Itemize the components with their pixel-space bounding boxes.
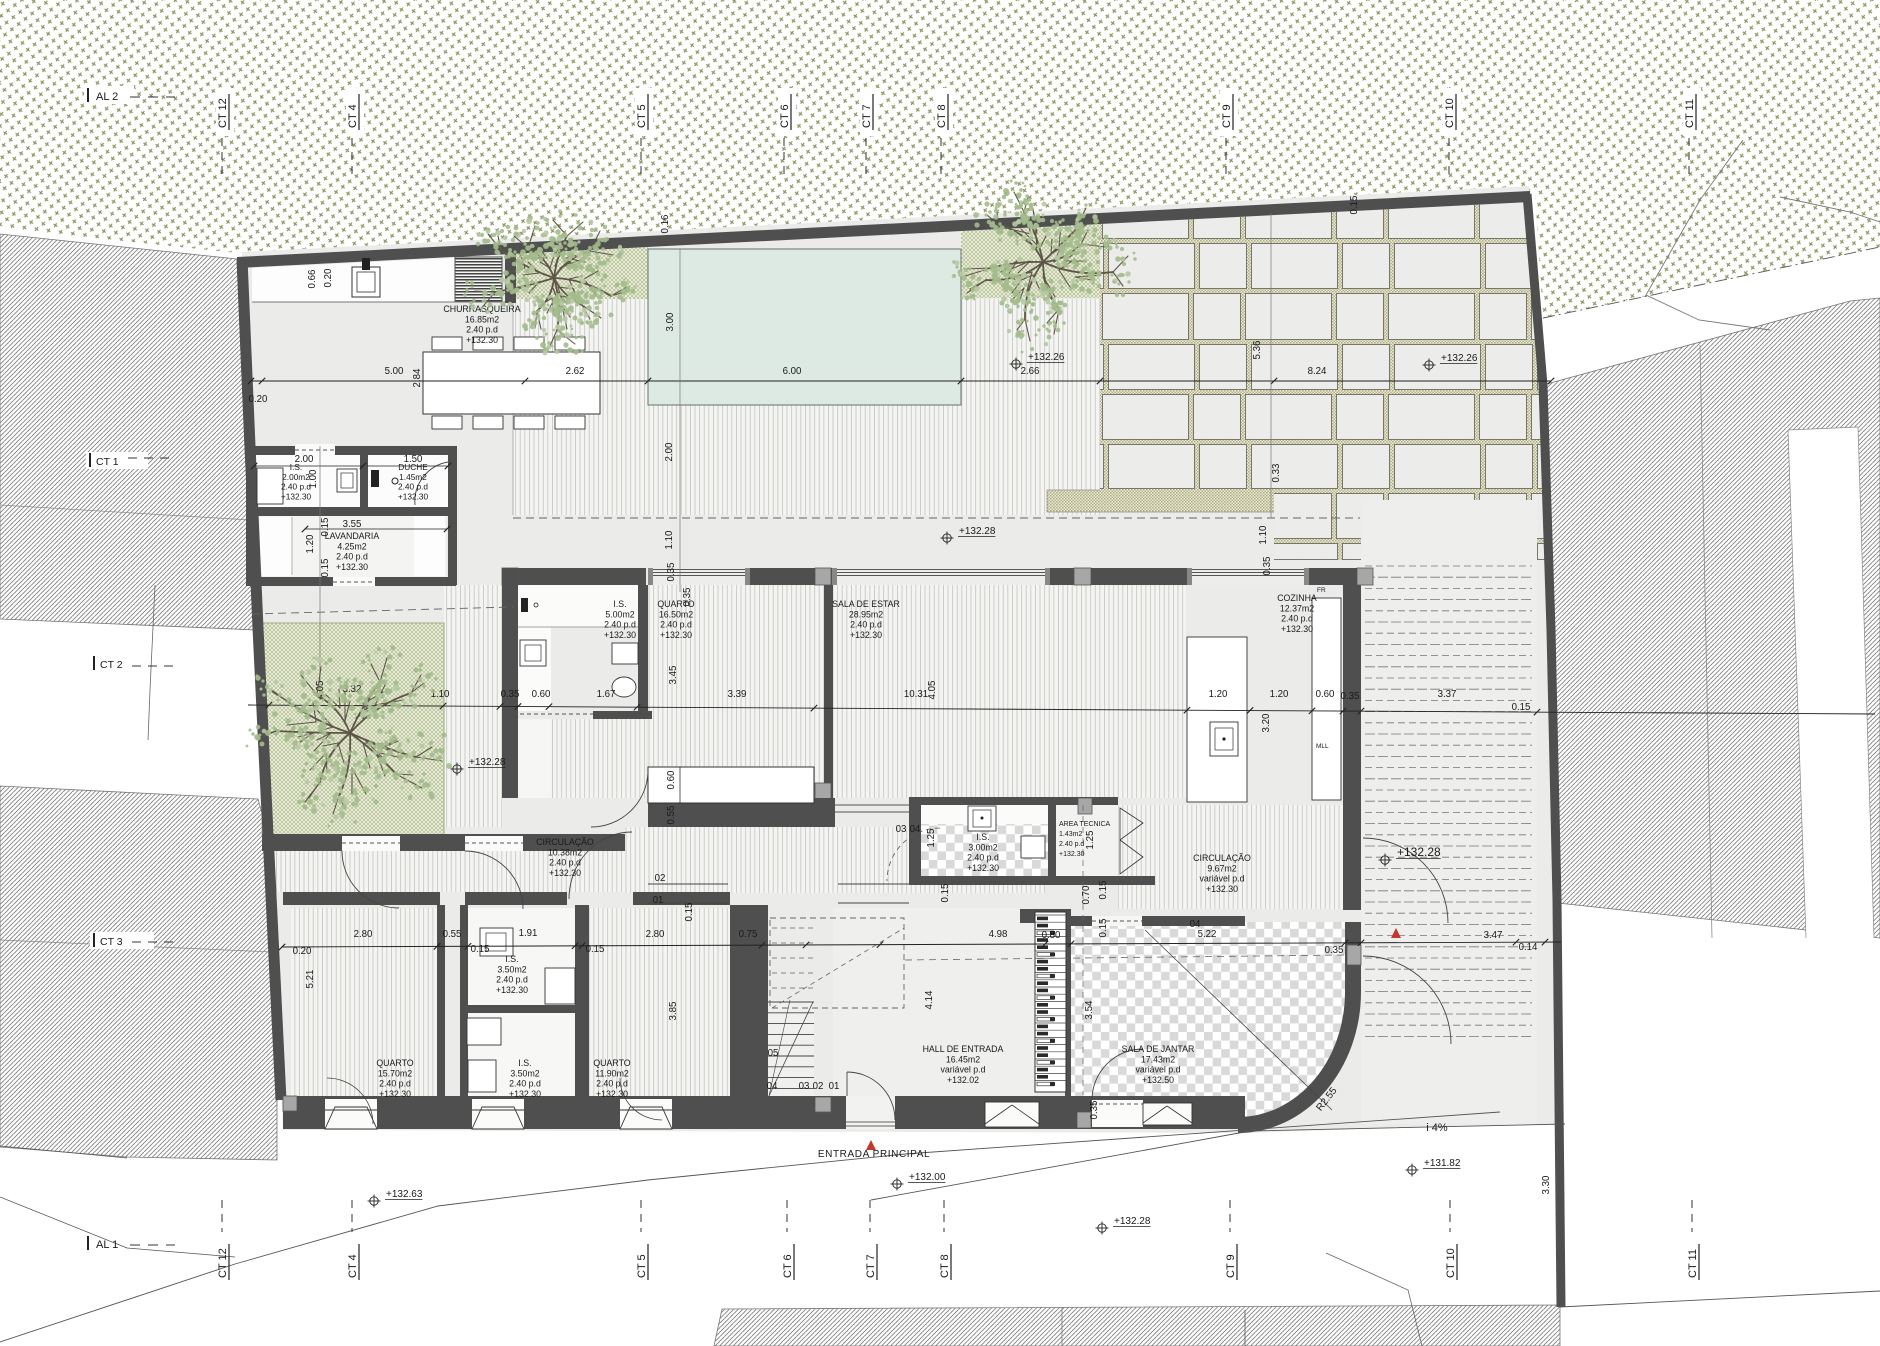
svg-text:CT 10: CT 10 <box>1445 1248 1457 1278</box>
svg-text:+132.28: +132.28 <box>1114 1216 1151 1227</box>
svg-text:0.20: 0.20 <box>293 946 312 957</box>
svg-text:3.45: 3.45 <box>668 666 679 685</box>
svg-text:15.70m2: 15.70m2 <box>378 1068 412 1078</box>
svg-text:2.40 p.d: 2.40 p.d <box>398 482 428 492</box>
svg-text:0.60: 0.60 <box>532 689 551 700</box>
svg-text:CT 11: CT 11 <box>1684 99 1696 128</box>
svg-text:+132.28: +132.28 <box>469 757 506 768</box>
svg-text:0.60: 0.60 <box>666 770 677 789</box>
svg-text:SALA DE JANTAR: SALA DE JANTAR <box>1122 1044 1195 1054</box>
svg-text:10.31: 10.31 <box>904 689 928 700</box>
svg-text:2.40 p.d: 2.40 p.d <box>466 325 498 335</box>
svg-text:+132.00: +132.00 <box>909 1172 946 1183</box>
svg-text:+132.30: +132.30 <box>281 491 312 501</box>
svg-text:+132.02: +132.02 <box>947 1075 979 1085</box>
svg-text:16.50m2: 16.50m2 <box>659 609 693 619</box>
svg-text:FR: FR <box>1317 587 1326 594</box>
svg-text:CT 3: CT 3 <box>100 936 123 948</box>
svg-text:+132.30: +132.30 <box>660 630 692 640</box>
svg-text:+132.30: +132.30 <box>967 863 999 873</box>
svg-text:CIRCULAÇÃO: CIRCULAÇÃO <box>536 837 594 847</box>
svg-text:0.15: 0.15 <box>684 903 695 922</box>
svg-text:I.S.: I.S. <box>976 832 989 842</box>
svg-text:I.S.: I.S. <box>613 599 626 609</box>
svg-text:variável p.d: variável p.d <box>1136 1065 1181 1075</box>
svg-text:+132.30: +132.30 <box>1059 851 1085 858</box>
svg-text:2.40 p.d: 2.40 p.d <box>336 552 368 562</box>
svg-text:4.25m2: 4.25m2 <box>337 541 366 551</box>
svg-text:AL 1: AL 1 <box>96 1239 118 1251</box>
svg-text:1.10: 1.10 <box>1258 525 1269 544</box>
svg-text:5.22: 5.22 <box>1198 929 1217 940</box>
svg-text:04: 04 <box>767 1081 778 1092</box>
svg-text:0.70: 0.70 <box>1081 885 1092 904</box>
svg-text:CT 4: CT 4 <box>347 104 359 128</box>
svg-text:3.39: 3.39 <box>728 689 747 700</box>
svg-text:1.43m2: 1.43m2 <box>1059 831 1082 838</box>
svg-text:+132.30: +132.30 <box>596 1089 628 1099</box>
svg-text:CT 11: CT 11 <box>1687 1249 1699 1278</box>
svg-text:2.80: 2.80 <box>646 929 665 940</box>
svg-text:QUARTO: QUARTO <box>657 599 694 609</box>
svg-text:2.40 p.d: 2.40 p.d <box>379 1079 411 1089</box>
svg-text:CT 8: CT 8 <box>936 104 948 128</box>
svg-text:0.15: 0.15 <box>320 559 331 578</box>
svg-text:CT 6: CT 6 <box>779 104 791 128</box>
svg-text:CT 4: CT 4 <box>347 1254 359 1278</box>
svg-text:+132.30: +132.30 <box>850 630 882 640</box>
svg-text:6.00: 6.00 <box>783 366 802 377</box>
svg-text:2.40 p.d: 2.40 p.d <box>596 1079 628 1089</box>
svg-text:05: 05 <box>768 1048 779 1059</box>
svg-text:11.90m2: 11.90m2 <box>595 1068 629 1078</box>
svg-text:+132.28: +132.28 <box>959 526 996 537</box>
svg-text:CT 1: CT 1 <box>96 456 119 468</box>
svg-text:0.15: 0.15 <box>586 944 605 955</box>
svg-text:01: 01 <box>653 895 664 906</box>
svg-text:12.37m2: 12.37m2 <box>1280 603 1314 613</box>
svg-text:2.40 p.d: 2.40 p.d <box>281 482 311 492</box>
svg-text:variável p.d: variável p.d <box>1200 874 1245 884</box>
svg-text:+132.30: +132.30 <box>1281 624 1313 634</box>
svg-text:2.40 p.d: 2.40 p.d <box>604 620 636 630</box>
svg-text:8.24: 8.24 <box>1308 366 1327 377</box>
svg-text:+132.30: +132.30 <box>509 1089 541 1099</box>
svg-text:AL 2: AL 2 <box>96 91 118 103</box>
svg-text:0.55: 0.55 <box>666 806 677 825</box>
svg-text:5.36: 5.36 <box>1252 341 1263 360</box>
svg-text:AREA TECNICA: AREA TECNICA <box>1059 821 1111 828</box>
svg-text:2.40 p.d: 2.40 p.d <box>509 1079 541 1089</box>
svg-text:+132.30: +132.30 <box>398 491 429 501</box>
svg-text:CT 2: CT 2 <box>100 659 123 671</box>
svg-text:0.35: 0.35 <box>501 689 520 700</box>
svg-text:+132.26: +132.26 <box>1028 352 1065 363</box>
svg-text:CT 5: CT 5 <box>636 104 648 128</box>
svg-text:+132.26: +132.26 <box>1441 353 1478 364</box>
svg-text:3.50m2: 3.50m2 <box>497 964 526 974</box>
svg-text:17.43m2: 17.43m2 <box>1141 1054 1175 1064</box>
svg-text:4.05: 4.05 <box>927 681 938 700</box>
svg-text:02: 02 <box>813 1081 824 1092</box>
svg-text:HALL DE ENTRADA: HALL DE ENTRADA <box>923 1044 1004 1054</box>
svg-text:LAVANDARIA: LAVANDARIA <box>325 531 380 541</box>
svg-text:0.35: 0.35 <box>1089 1101 1100 1120</box>
svg-text:10.38m2: 10.38m2 <box>548 847 582 857</box>
svg-text:2.40 p.d: 2.40 p.d <box>660 620 692 630</box>
svg-text:1.25: 1.25 <box>926 829 937 848</box>
svg-text:0.14: 0.14 <box>1519 942 1538 953</box>
svg-text:+132.30: +132.30 <box>336 562 368 572</box>
svg-text:3.20: 3.20 <box>1261 713 1272 732</box>
svg-text:0.80: 0.80 <box>1042 930 1061 941</box>
svg-text:CT 5: CT 5 <box>636 1254 648 1278</box>
svg-text:DUCHE: DUCHE <box>398 462 428 472</box>
svg-text:1.20: 1.20 <box>1270 689 1289 700</box>
svg-text:+132.63: +132.63 <box>386 1189 423 1200</box>
svg-text:03: 03 <box>799 1081 810 1092</box>
svg-text:0.35: 0.35 <box>1341 691 1360 702</box>
svg-text:+132.30: +132.30 <box>1206 884 1238 894</box>
svg-text:1.25: 1.25 <box>1085 831 1096 850</box>
svg-text:CT 6: CT 6 <box>782 1254 794 1278</box>
svg-text:3.85: 3.85 <box>668 1002 679 1021</box>
svg-text:0.66: 0.66 <box>307 270 318 289</box>
svg-text:5.00m2: 5.00m2 <box>605 609 634 619</box>
svg-text:0.15: 0.15 <box>1349 196 1360 215</box>
svg-text:01: 01 <box>829 1081 840 1092</box>
svg-text:0.60: 0.60 <box>1316 689 1335 700</box>
svg-text:2.40 p.d: 2.40 p.d <box>496 975 528 985</box>
svg-text:CT 9: CT 9 <box>1225 1254 1237 1278</box>
svg-text:5.00: 5.00 <box>385 366 404 377</box>
svg-text:0.35: 0.35 <box>1262 557 1273 576</box>
svg-text:2.66: 2.66 <box>1021 366 1040 377</box>
svg-text:2.00: 2.00 <box>664 442 675 461</box>
svg-text:CT 12: CT 12 <box>217 1248 229 1278</box>
svg-text:4.14: 4.14 <box>924 990 935 1009</box>
svg-text:3.30: 3.30 <box>1541 1175 1552 1194</box>
svg-text:0.15: 0.15 <box>1098 881 1109 900</box>
svg-text:0.15: 0.15 <box>471 944 490 955</box>
svg-text:3.50m2: 3.50m2 <box>510 1068 539 1078</box>
svg-text:0.33: 0.33 <box>1271 464 1282 483</box>
svg-text:+132.30: +132.30 <box>466 335 498 345</box>
svg-text:0.16: 0.16 <box>660 215 671 234</box>
svg-text:02: 02 <box>655 873 666 884</box>
svg-text:0.15: 0.15 <box>1098 919 1109 938</box>
svg-text:5.21: 5.21 <box>305 970 316 989</box>
svg-text:CT 10: CT 10 <box>1444 98 1456 128</box>
svg-text:1.20: 1.20 <box>1209 689 1228 700</box>
svg-text:9.67m2: 9.67m2 <box>1207 863 1236 873</box>
svg-text:0.75: 0.75 <box>739 929 758 940</box>
svg-text:MLL: MLL <box>1316 743 1329 750</box>
svg-text:2.40 p.d: 2.40 p.d <box>1281 614 1313 624</box>
svg-text:0.35: 0.35 <box>1325 945 1344 956</box>
svg-text:SALA DE ESTAR: SALA DE ESTAR <box>832 599 900 609</box>
svg-text:I.S.: I.S. <box>290 462 302 472</box>
svg-text:28.95m2: 28.95m2 <box>849 609 883 619</box>
svg-text:3.00m2: 3.00m2 <box>968 842 997 852</box>
svg-text:2.40 p.d: 2.40 p.d <box>967 853 999 863</box>
svg-text:COZINHA: COZINHA <box>1277 593 1317 603</box>
svg-text:16.45m2: 16.45m2 <box>946 1054 980 1064</box>
svg-text:i 4%: i 4% <box>1426 1122 1448 1134</box>
svg-text:CIRCULAÇÃO: CIRCULAÇÃO <box>1193 853 1251 863</box>
svg-text:2.00m2: 2.00m2 <box>282 472 310 482</box>
svg-text:04: 04 <box>910 824 921 835</box>
svg-text:+132.30: +132.30 <box>379 1089 411 1099</box>
svg-text:1.20: 1.20 <box>305 534 316 553</box>
svg-text:0.35: 0.35 <box>666 563 677 582</box>
svg-text:16.85m2: 16.85m2 <box>465 314 499 324</box>
svg-text:+132.28: +132.28 <box>1397 845 1441 859</box>
svg-text:0.15: 0.15 <box>940 884 951 903</box>
svg-text:2.40 p.d: 2.40 p.d <box>1059 841 1084 848</box>
svg-text:0.20: 0.20 <box>323 268 334 287</box>
svg-text:2.40 p.d: 2.40 p.d <box>850 620 882 630</box>
svg-text:2.62: 2.62 <box>566 366 585 377</box>
svg-text:ENTRADA PRINCIPAL: ENTRADA PRINCIPAL <box>818 1149 930 1160</box>
svg-text:3.55: 3.55 <box>343 519 362 530</box>
svg-text:variável p.d: variável p.d <box>941 1065 986 1075</box>
svg-text:03: 03 <box>896 824 907 835</box>
svg-text:1.91: 1.91 <box>519 928 538 939</box>
svg-text:+132.50: +132.50 <box>1142 1075 1174 1085</box>
svg-text:+131.82: +131.82 <box>1424 1158 1461 1169</box>
svg-text:+132.30: +132.30 <box>549 868 581 878</box>
svg-text:2.80: 2.80 <box>354 929 373 940</box>
svg-text:+132.30: +132.30 <box>604 630 636 640</box>
svg-text:2.84: 2.84 <box>412 368 423 387</box>
svg-text:CT 7: CT 7 <box>865 1254 877 1278</box>
svg-text:3.37: 3.37 <box>1438 689 1457 700</box>
svg-text:CT 7: CT 7 <box>861 104 873 128</box>
svg-text:0.15: 0.15 <box>1512 702 1531 713</box>
svg-text:1.67: 1.67 <box>597 689 616 700</box>
svg-text:CT 9: CT 9 <box>1221 104 1233 128</box>
svg-text:CT 12: CT 12 <box>217 98 229 128</box>
svg-text:4.98: 4.98 <box>989 929 1008 940</box>
svg-text:I.S.: I.S. <box>505 954 518 964</box>
svg-text:CT 8: CT 8 <box>939 1254 951 1278</box>
svg-text:1.45m2: 1.45m2 <box>399 472 427 482</box>
svg-text:+132.30: +132.30 <box>496 985 528 995</box>
svg-text:2.40 p.d: 2.40 p.d <box>549 858 581 868</box>
svg-text:1.10: 1.10 <box>664 530 675 549</box>
svg-text:QUARTO: QUARTO <box>376 1058 413 1068</box>
svg-text:04: 04 <box>1190 919 1201 930</box>
svg-text:0.20: 0.20 <box>249 394 268 405</box>
svg-text:3.54: 3.54 <box>1084 1000 1095 1019</box>
svg-text:3.47: 3.47 <box>1484 930 1503 941</box>
svg-text:3.00: 3.00 <box>665 312 676 331</box>
svg-text:QUARTO: QUARTO <box>593 1058 630 1068</box>
svg-text:0.55: 0.55 <box>443 929 462 940</box>
svg-text:I.S.: I.S. <box>518 1058 531 1068</box>
